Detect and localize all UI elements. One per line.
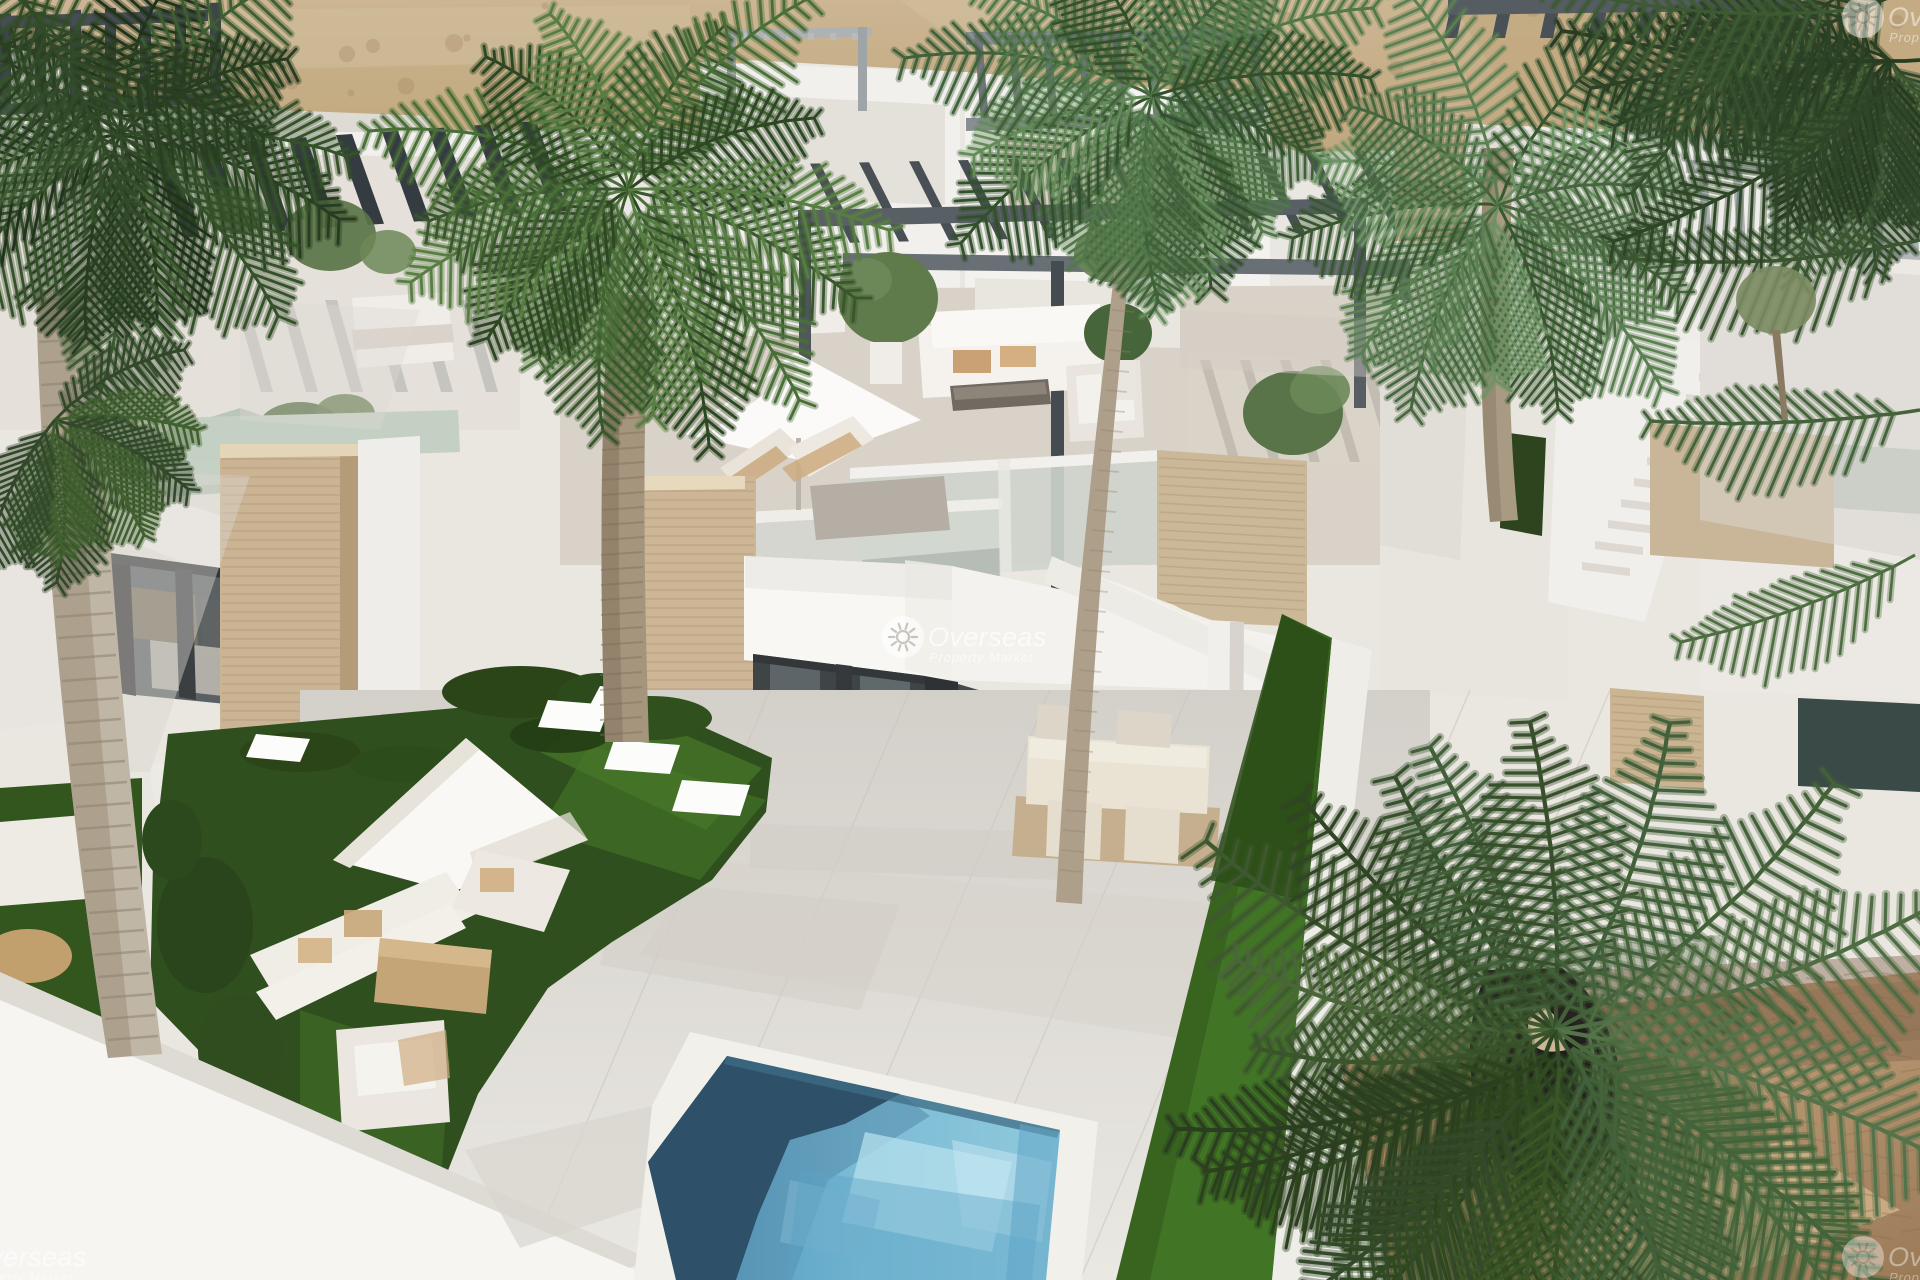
svg-text:Property Market: Property Market <box>1889 1270 1920 1280</box>
svg-text:Property Market: Property Market <box>929 650 1034 665</box>
svg-text:Overseas: Overseas <box>1888 1242 1920 1272</box>
svg-text:Overseas: Overseas <box>0 1242 87 1272</box>
svg-text:Property Market: Property Market <box>1889 30 1920 45</box>
svg-text:Overseas: Overseas <box>928 622 1047 652</box>
svg-text:Overseas: Overseas <box>1888 2 1920 32</box>
svg-text:Property Market: Property Market <box>0 1270 74 1280</box>
